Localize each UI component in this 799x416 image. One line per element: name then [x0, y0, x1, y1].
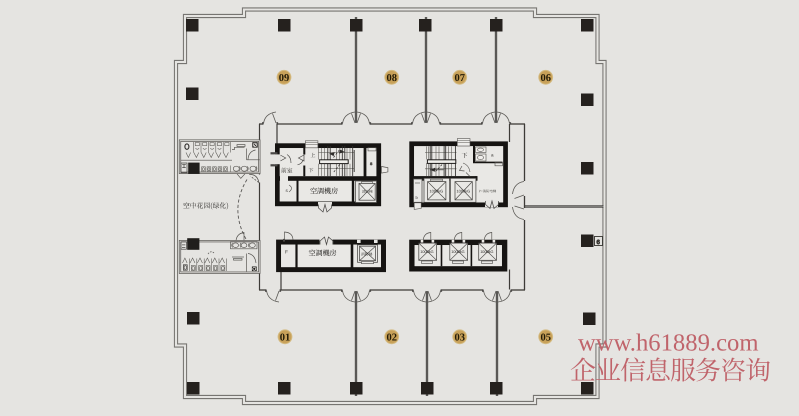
svg-text:a: a: [491, 153, 494, 158]
svg-text:1000kG: 1000kG: [457, 189, 471, 194]
svg-text:1000kG: 1000kG: [480, 250, 493, 254]
svg-text:03: 03: [454, 332, 465, 343]
svg-text:09: 09: [279, 73, 290, 84]
svg-text:08: 08: [386, 73, 397, 84]
svg-text:07: 07: [454, 73, 465, 84]
svg-text:www.h61889.com: www.h61889.com: [578, 330, 759, 357]
svg-text:02: 02: [386, 332, 397, 343]
svg-text:F: F: [285, 250, 288, 256]
svg-text:05: 05: [540, 332, 551, 343]
svg-text:1000kG: 1000kG: [420, 250, 433, 254]
svg-text:1000kG: 1000kG: [451, 250, 464, 254]
svg-text:06: 06: [540, 73, 551, 84]
svg-text:1000kG: 1000kG: [430, 189, 444, 194]
svg-text:01: 01: [280, 332, 291, 343]
